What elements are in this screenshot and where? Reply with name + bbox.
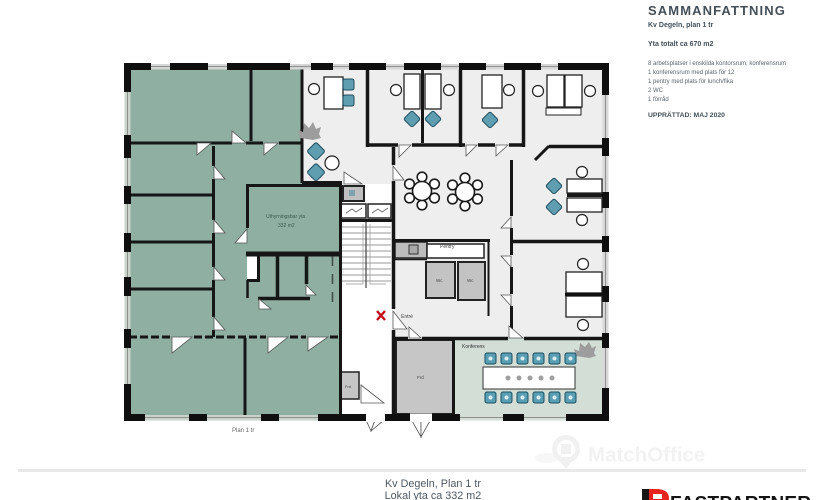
svg-text:FASTPARTNER: FASTPARTNER <box>670 494 811 500</box>
svg-text:Plan 1 tr: Plan 1 tr <box>232 428 254 434</box>
svg-text:MatchOffice: MatchOffice <box>588 444 705 467</box>
svg-text:Frd: Frd <box>345 384 351 389</box>
svg-text:Wc: Wc <box>436 278 443 283</box>
svg-text:Pentry: Pentry <box>440 244 455 250</box>
svg-text:Uthyrningsbar yta: Uthyrningsbar yta <box>266 214 305 220</box>
svg-text:Konferens: Konferens <box>462 344 485 350</box>
svg-text:Wc: Wc <box>467 278 474 283</box>
svg-text:Entré: Entré <box>401 314 413 320</box>
svg-text:Frd: Frd <box>417 375 424 380</box>
svg-text:332 m2: 332 m2 <box>278 223 295 229</box>
